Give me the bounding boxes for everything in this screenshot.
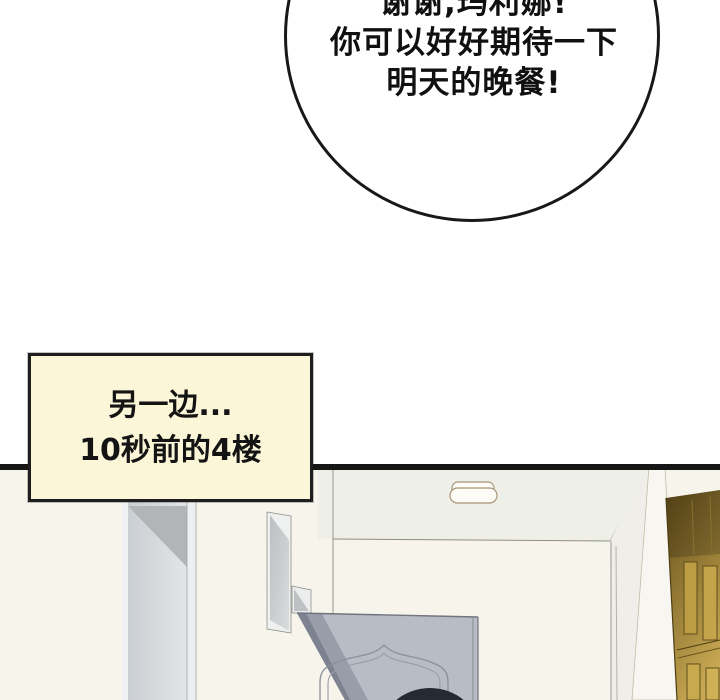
bubble-line-1: 谢谢,玛利娜! xyxy=(254,0,694,23)
alcove-frame-strip xyxy=(267,512,291,633)
wood-panel xyxy=(703,566,717,640)
wood-panel xyxy=(687,664,700,700)
left-pillar xyxy=(122,500,196,700)
speech-bubble-text: 谢谢,玛利娜! 你可以好好期待一下 明天的晚餐! xyxy=(254,0,694,103)
ceiling-lamp xyxy=(450,482,497,503)
hallway-scene xyxy=(0,470,720,700)
bubble-line-3: 明天的晚餐! xyxy=(254,63,694,103)
ceiling xyxy=(318,470,650,541)
narration-caption-box: 另一边... 10秒前的4楼 xyxy=(28,353,313,502)
bubble-line-2: 你可以好好期待一下 xyxy=(254,23,694,63)
comic-panel: 谢谢,玛利娜! 你可以好好期待一下 明天的晚餐! 另一边... 10秒前的4楼 xyxy=(0,0,720,700)
wood-panel xyxy=(684,562,697,634)
caption-line-1: 另一边... xyxy=(108,383,232,428)
wood-panel xyxy=(706,668,719,700)
alcove-frame-strip-small xyxy=(292,586,311,613)
caption-line-2: 10秒前的4楼 xyxy=(79,428,262,473)
